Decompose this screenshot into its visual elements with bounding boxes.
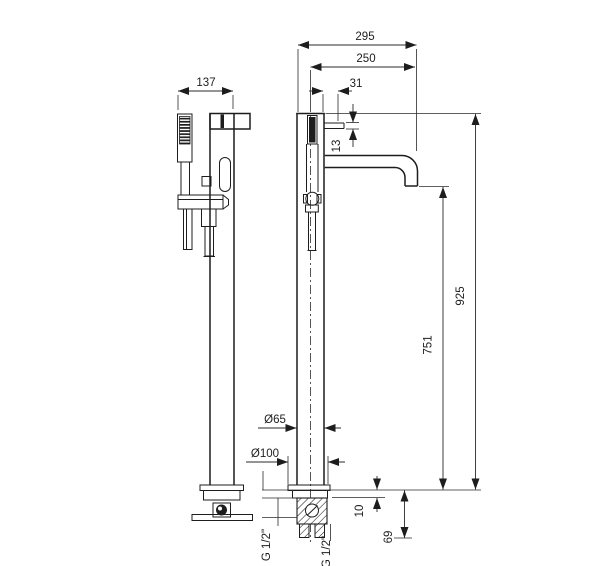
front-view xyxy=(288,114,418,543)
dim-label-65: Ø65 xyxy=(264,414,286,426)
technical-drawing-canvas: 137 xyxy=(0,0,604,566)
dim-751: 751 xyxy=(423,187,444,490)
dim-label-250: 250 xyxy=(356,53,375,65)
inlet-thread-label-left: G 1/2" xyxy=(261,498,297,561)
thread-label-left: G 1/2" xyxy=(261,529,273,561)
dim-label-10: 10 xyxy=(354,505,366,518)
side-view: 137 xyxy=(178,77,253,521)
dim-label-925: 925 xyxy=(455,286,467,305)
shower-spray-face xyxy=(180,117,191,145)
dim-137: 137 xyxy=(178,77,233,110)
inlet-screw-side xyxy=(216,505,227,516)
thread-label-right: G 1/2" xyxy=(321,536,333,566)
side-view-cartridge-mark xyxy=(221,115,225,129)
dim-69: 69 xyxy=(383,491,412,544)
dim-label-13: 13 xyxy=(331,140,343,153)
dim-label-295: 295 xyxy=(355,31,374,43)
inlet-stud-left xyxy=(300,524,310,538)
front-view-base xyxy=(288,485,330,538)
dim-100: Ø100 xyxy=(246,448,345,484)
spout-front xyxy=(325,156,418,187)
dim-10: 10 xyxy=(332,476,385,517)
dim-925: 925 xyxy=(455,114,476,490)
dim-31: 31 xyxy=(309,78,362,121)
dim-label-69: 69 xyxy=(383,531,395,544)
dim-250: 250 xyxy=(311,53,416,112)
dim-label-137: 137 xyxy=(196,77,215,89)
side-view-base xyxy=(192,485,253,521)
lever-handle-front xyxy=(324,123,344,129)
hand-shower-head-side xyxy=(178,114,193,195)
dim-65: Ø65 xyxy=(258,414,341,428)
hand-shower-handle-side xyxy=(184,209,217,257)
dim-label-31: 31 xyxy=(350,78,363,90)
shower-holder-bracket xyxy=(178,195,229,209)
inlet-stud-right xyxy=(315,524,325,538)
reference-lines xyxy=(262,114,481,491)
bath-mixer-dimension-drawing: 137 xyxy=(0,0,604,566)
dim-label-100: Ø100 xyxy=(251,448,279,460)
dim-label-751: 751 xyxy=(423,335,435,354)
spout-end-profile xyxy=(220,158,231,192)
hand-shower-front xyxy=(304,116,322,251)
